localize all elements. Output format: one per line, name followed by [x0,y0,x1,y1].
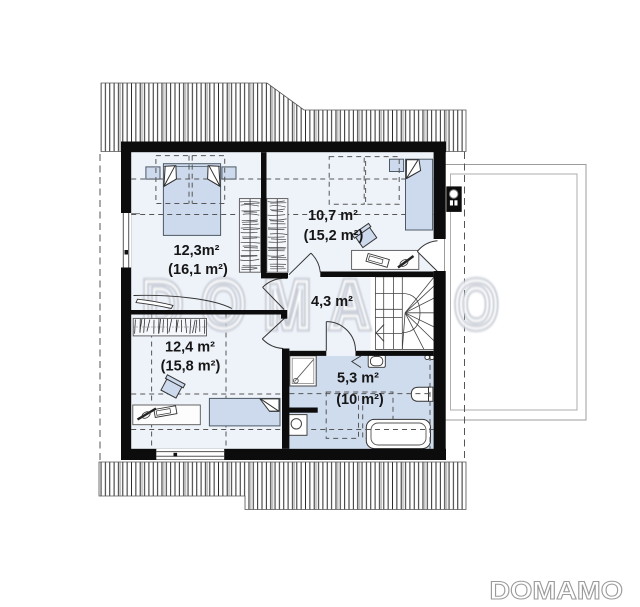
svg-text:(10 m²): (10 m²) [336,392,384,408]
svg-text:4,3 m²: 4,3 m² [311,294,353,310]
svg-text:5,3 m²: 5,3 m² [337,371,379,387]
svg-text:12,3m²: 12,3m² [174,243,220,259]
svg-text:(15,2 m²): (15,2 m²) [304,228,364,244]
svg-text:(16,1 m²): (16,1 m²) [168,262,228,278]
svg-text:12,4 m²: 12,4 m² [165,340,215,356]
svg-text:10,7 m²: 10,7 m² [308,208,358,224]
svg-text:DOMAMO: DOMAMO [490,577,624,605]
svg-text:(15,8 m²): (15,8 m²) [161,359,221,375]
